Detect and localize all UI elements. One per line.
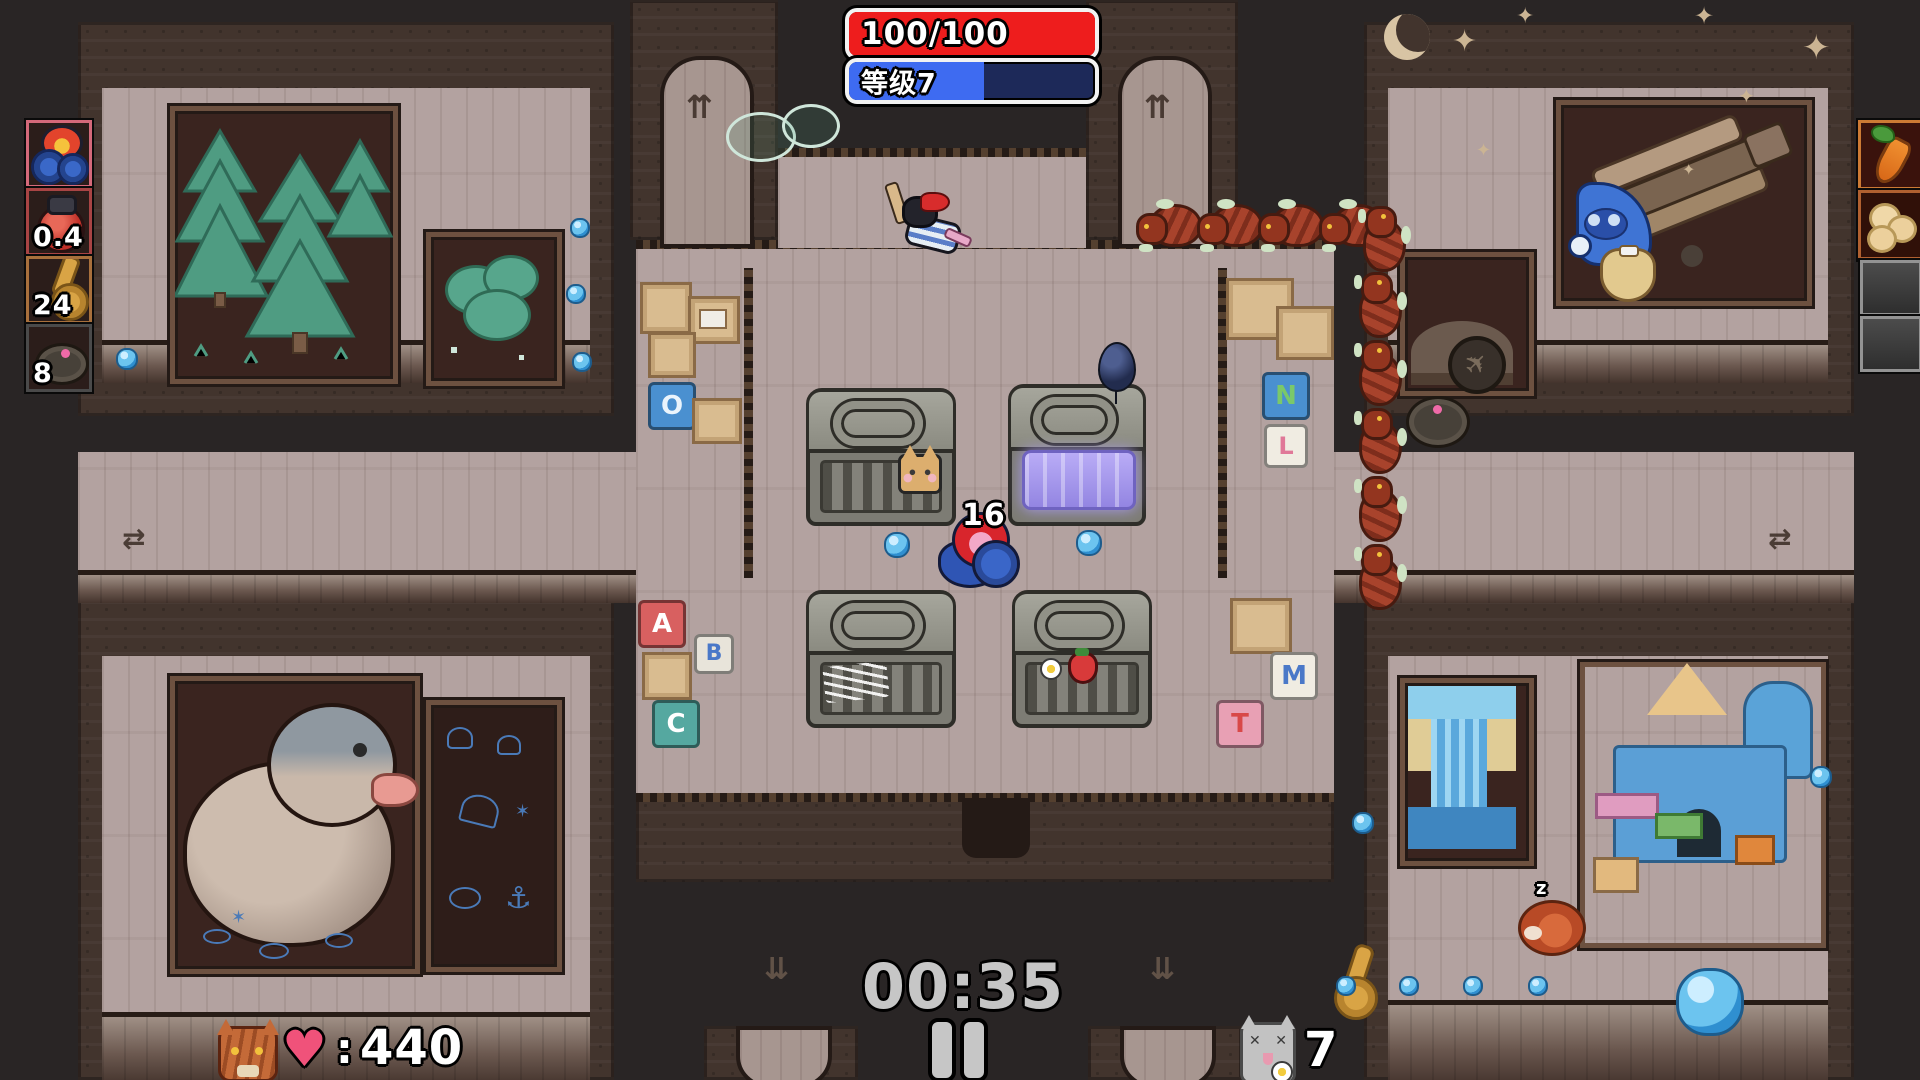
xp-gem bbox=[1352, 812, 1374, 834]
merchant-cat bbox=[1572, 182, 1664, 300]
weapon-slot-saxophone: 24 bbox=[26, 256, 92, 324]
room-waterfall bbox=[1400, 678, 1534, 866]
chalk-crab bbox=[449, 887, 481, 909]
item-slot-carrot bbox=[1858, 120, 1920, 190]
tiger-ear bbox=[261, 1019, 279, 1035]
cardboard-box bbox=[642, 652, 692, 700]
rubber-duck-head bbox=[267, 703, 397, 827]
letter-block-c: C bbox=[652, 700, 700, 748]
tiger-enemy bbox=[1258, 198, 1324, 252]
cat-counter-value: 7 bbox=[1304, 1022, 1338, 1078]
letter-block-a: A bbox=[638, 600, 686, 648]
cage-handle bbox=[1033, 397, 1117, 442]
cannon-barrel-icon bbox=[57, 153, 89, 185]
merchant-paw bbox=[1568, 234, 1592, 258]
room-bushes bbox=[426, 232, 562, 386]
letter-block-t: T bbox=[1216, 700, 1264, 748]
tiger-enemy bbox=[1197, 198, 1263, 252]
star-icon: ✦ bbox=[1738, 84, 1755, 108]
tiger-enemy bbox=[1136, 198, 1202, 252]
landmine-enemy bbox=[1406, 396, 1470, 448]
kill-counter-value: 440 bbox=[360, 1020, 463, 1076]
rubber-duck-beak bbox=[371, 773, 419, 807]
cardboard-box bbox=[640, 282, 692, 334]
chalk-shell bbox=[447, 727, 473, 749]
toy-bar-green bbox=[1655, 813, 1703, 839]
cage-strawberry bbox=[1012, 590, 1152, 728]
arrow-down-left-icon: ⇊ bbox=[764, 952, 789, 987]
kill-counter: ♥ : 440 bbox=[218, 1016, 478, 1078]
letter-block-o: O bbox=[648, 382, 696, 430]
cage-handle bbox=[1037, 603, 1122, 648]
cardboard-box bbox=[1276, 306, 1334, 360]
health-bar-text: 100/100 bbox=[861, 16, 1009, 52]
landmine-light-icon bbox=[61, 349, 70, 358]
player-wheel bbox=[972, 540, 1020, 588]
cage-cat bbox=[806, 388, 956, 526]
cage-handle bbox=[833, 401, 923, 446]
item-slot-empty bbox=[1860, 260, 1920, 316]
health-bar: 100/100 bbox=[845, 8, 1099, 60]
waterfall-fall bbox=[1431, 719, 1487, 813]
chalk-shell bbox=[497, 735, 521, 755]
star-icon: ✦ bbox=[1802, 28, 1831, 68]
tiger-enemy bbox=[1354, 340, 1408, 406]
big-bubble bbox=[1676, 968, 1744, 1036]
xp-gem bbox=[566, 284, 586, 304]
room-forest bbox=[170, 106, 398, 384]
xp-gem bbox=[572, 352, 592, 372]
chalk-fish bbox=[325, 933, 353, 948]
merchant-glasses bbox=[1588, 214, 1600, 226]
flower-icon bbox=[1271, 1061, 1293, 1080]
arrow-up-right-icon: ⇈ bbox=[1144, 88, 1171, 126]
star-icon: ✦ bbox=[1516, 4, 1534, 29]
arrow-down-right-icon: ⇊ bbox=[1150, 952, 1175, 987]
pirate-bandana bbox=[920, 192, 950, 212]
landmine-count: 8 bbox=[33, 360, 53, 387]
weapon-slot-cannon bbox=[26, 120, 92, 188]
weapon-slot-landmine: 8 bbox=[26, 324, 92, 392]
flower-icon bbox=[1040, 658, 1062, 680]
letter-block-m: M bbox=[1270, 652, 1318, 700]
graffiti-scribble bbox=[822, 661, 889, 703]
sleep-z: z bbox=[1536, 878, 1547, 899]
tiger-face-icon bbox=[218, 1026, 278, 1080]
tiger-muzzle bbox=[237, 1065, 259, 1077]
star-icon: ✦ bbox=[1694, 2, 1714, 30]
envelope-icon bbox=[699, 309, 727, 329]
moon-icon bbox=[1384, 14, 1430, 60]
grass-sparkle bbox=[519, 355, 524, 360]
bomb-cap-icon bbox=[47, 195, 77, 215]
game-viewport: ⇈ ⇈ ⇊ ⇊ ⇄ ⇄ bbox=[0, 0, 1920, 1080]
room-toy-blocks bbox=[1580, 662, 1826, 948]
money-bag bbox=[1600, 248, 1656, 302]
toy-roof-triangle bbox=[1647, 663, 1727, 715]
fox-tail-tip bbox=[1524, 926, 1542, 940]
tiger-enemy bbox=[1354, 544, 1408, 610]
biplane-wheel bbox=[1681, 245, 1703, 267]
dead-cat-eye: ✕ bbox=[1275, 1033, 1287, 1049]
popcorn-icon bbox=[1867, 225, 1897, 253]
star-icon: ✦ bbox=[1682, 160, 1695, 179]
xp-gem bbox=[884, 532, 910, 558]
plane-sign-icon: ✈ bbox=[1452, 339, 1503, 390]
wallface-bottom-right bbox=[1388, 1000, 1828, 1080]
timer: 00:35 bbox=[853, 950, 1073, 1023]
item-slot-empty bbox=[1860, 316, 1920, 372]
wallface-corridor-left bbox=[78, 570, 636, 603]
carrot-leaves-icon bbox=[1871, 125, 1895, 143]
saxophone-count: 24 bbox=[33, 292, 73, 319]
kill-counter-colon: : bbox=[336, 1024, 354, 1073]
top-gate-edge bbox=[778, 148, 1086, 157]
dead-cat-icon: ✕ ✕ bbox=[1240, 1022, 1296, 1080]
strawberry-icon bbox=[1068, 652, 1098, 684]
caged-cat-face bbox=[898, 454, 942, 494]
cage-graffiti bbox=[806, 590, 956, 728]
arrow-up-left-icon: ⇈ bbox=[686, 88, 713, 126]
tiger-ear bbox=[217, 1019, 235, 1035]
xp-gem bbox=[570, 218, 590, 238]
level-bar: 等级7 bbox=[845, 58, 1099, 104]
cardboard-box bbox=[692, 398, 742, 444]
toy-block-orange bbox=[1735, 835, 1775, 865]
arrow-exit-left-icon: ⇄ bbox=[122, 522, 145, 555]
letter-block-n: N bbox=[1262, 372, 1310, 420]
xp-gem bbox=[1076, 530, 1102, 556]
tiger-enemy bbox=[1354, 476, 1408, 542]
dead-cat-ear bbox=[1241, 1015, 1257, 1029]
xp-gem bbox=[116, 348, 138, 370]
pause-bar bbox=[960, 1018, 988, 1080]
block-nook-left-edge bbox=[744, 268, 753, 578]
xp-gem bbox=[1336, 976, 1356, 996]
pause-bar bbox=[928, 1018, 956, 1080]
chalk-fish bbox=[203, 929, 231, 944]
level-bar-text: 等级7 bbox=[861, 62, 937, 101]
toy-block-tan bbox=[1593, 857, 1639, 893]
floor-corridor-left bbox=[78, 452, 636, 570]
xp-gem bbox=[1528, 976, 1548, 996]
tiger-enemy bbox=[1354, 408, 1408, 474]
landmine-light bbox=[1433, 405, 1442, 414]
moon-shadow bbox=[1396, 14, 1430, 52]
tower-bottom-left-arch bbox=[736, 1026, 832, 1080]
pine-trees bbox=[175, 111, 393, 379]
pirate-cat-enemy bbox=[880, 196, 966, 252]
chalk-anchor: ⚓ bbox=[505, 881, 532, 916]
dead-cat-eye: ✕ bbox=[1249, 1033, 1261, 1049]
cardboard-box bbox=[1230, 598, 1292, 654]
chalk-star: ✶ bbox=[515, 801, 530, 822]
cardboard-box bbox=[648, 332, 696, 378]
player-level-tag: 16 bbox=[962, 498, 1006, 533]
heart-icon: ♥ bbox=[282, 1020, 328, 1078]
wallface-corridor-right bbox=[1334, 570, 1854, 603]
pause-button[interactable] bbox=[922, 1018, 994, 1076]
xp-gem bbox=[1463, 976, 1483, 996]
waterfall-sky bbox=[1408, 686, 1516, 722]
arrow-exit-right-icon: ⇄ bbox=[1768, 522, 1791, 555]
letter-block-b: B bbox=[694, 634, 734, 674]
room-duck: ✶ bbox=[170, 676, 420, 974]
tower-bottom-right-arch bbox=[1120, 1026, 1216, 1080]
cage-purple-panel bbox=[1008, 384, 1146, 526]
weapon-slot-bomb: 0.4 bbox=[26, 188, 92, 256]
cat-counter: ✕ ✕ 7 bbox=[1240, 1016, 1360, 1080]
room-chalkboard: ✶ ⚓ bbox=[426, 700, 562, 972]
grass-sparkle bbox=[451, 347, 457, 353]
bush-outline bbox=[782, 104, 840, 148]
xp-gem bbox=[1810, 766, 1832, 788]
dead-cat-ear bbox=[1279, 1015, 1295, 1029]
balloon-enemy bbox=[1098, 342, 1136, 392]
rubber-duck-eye bbox=[353, 743, 367, 757]
item-slot-popcorn bbox=[1858, 190, 1920, 260]
dead-cat-tongue bbox=[1263, 1053, 1273, 1065]
cage-handle bbox=[833, 603, 923, 648]
purple-glow-panel bbox=[1022, 450, 1136, 510]
star-icon: ✦ bbox=[1476, 140, 1491, 161]
tiger-enemy bbox=[1358, 206, 1412, 272]
bush bbox=[463, 289, 531, 341]
xp-gem bbox=[1399, 976, 1419, 996]
door-plaza-south bbox=[962, 798, 1030, 858]
plane-sign: ✈ bbox=[1448, 336, 1506, 394]
money-bag-tie bbox=[1619, 245, 1639, 257]
toy-bar-pink bbox=[1595, 793, 1659, 819]
tiger-enemy bbox=[1354, 272, 1408, 338]
chalk-starfish: ✶ bbox=[231, 907, 246, 928]
sleeping-fox: z bbox=[1518, 892, 1584, 952]
letter-block-l: L bbox=[1264, 424, 1308, 468]
chalk-squid bbox=[458, 791, 502, 829]
star-icon: ✦ bbox=[1452, 24, 1477, 59]
waterfall-pool bbox=[1408, 807, 1516, 849]
bomb-count: 0.4 bbox=[33, 224, 84, 251]
tiger-eye bbox=[231, 1047, 239, 1055]
chalk-fish bbox=[259, 943, 289, 959]
